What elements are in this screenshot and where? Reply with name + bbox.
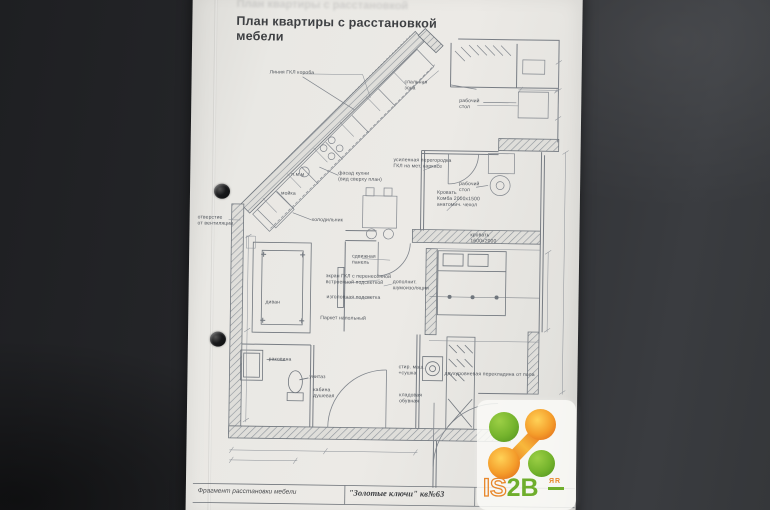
plan-label-10: холодильник	[312, 218, 343, 224]
hole-punch-top	[214, 184, 230, 199]
plan-label-11: отверстие от вентиляции	[198, 215, 234, 227]
plan-label-3: усиленная перегородка ГКЛ на мет. каркас…	[393, 158, 451, 170]
photo-of-floor-plan: План квартиры с расстановкой План кварти…	[0, 0, 770, 510]
plan-label-7: п.м.м	[291, 173, 304, 179]
paper-sheet: План квартиры с расстановкой План кварти…	[0, 0, 770, 510]
plan-label-2: рабочий стол	[459, 99, 480, 111]
plan-label-17: Паркет напольный	[320, 316, 366, 322]
plan-label-21: стир. маш. +сушка	[398, 365, 424, 377]
hallway-storage	[422, 337, 475, 430]
bed	[429, 251, 540, 317]
load-bearing-walls	[229, 26, 561, 443]
logo-2b-letters: 2B	[507, 474, 539, 502]
logo-is-letters: IS	[483, 474, 507, 502]
logo-green-ball-top	[489, 412, 519, 442]
hole-punch-bottom	[210, 332, 226, 347]
logo-superscript: ЯR	[549, 478, 561, 485]
floor-plan-drawing	[0, 0, 770, 510]
plan-label-9: фасад кухни (вид сверху план)	[338, 171, 382, 183]
plan-label-19: унитаз	[309, 375, 325, 381]
plan-label-13: сдвижная панель	[352, 255, 376, 267]
footer-caption: Фрагмент расстановки мебели	[198, 487, 297, 495]
plan-label-5: Кровать Комба 2000х1500 анатомич. чехол	[437, 191, 480, 209]
plan-label-15: изголовная подсветка	[326, 295, 380, 302]
plan-label-22: кладовая обувная	[399, 393, 422, 405]
plan-label-12: диван	[265, 300, 280, 306]
footer-project-name: "Золотые ключи" кв№63	[349, 488, 445, 499]
logo-green-ball-bottom	[528, 450, 555, 477]
study-desk-and-chair	[476, 153, 515, 196]
logo-underline	[548, 487, 564, 490]
plan-label-20: кабина душевая	[313, 388, 335, 400]
logo-orange-ball-top	[525, 409, 556, 440]
plan-label-8: мойка	[281, 192, 296, 198]
plan-label-16: дополнит. шумоизоляция	[393, 280, 429, 292]
is2b-watermark-logo: IS2B ЯR	[477, 400, 576, 510]
plan-label-6: кровать 1600х2000	[470, 233, 496, 245]
plan-label-14: экран ГКЛ с перенесённой встроенной подс…	[326, 274, 391, 286]
plan-label-18: раковина	[269, 357, 292, 363]
dining-table	[362, 188, 397, 239]
plan-label-1: спальная зона	[404, 80, 427, 92]
plan-label-0: Линия ГКЛ короба	[270, 70, 315, 76]
